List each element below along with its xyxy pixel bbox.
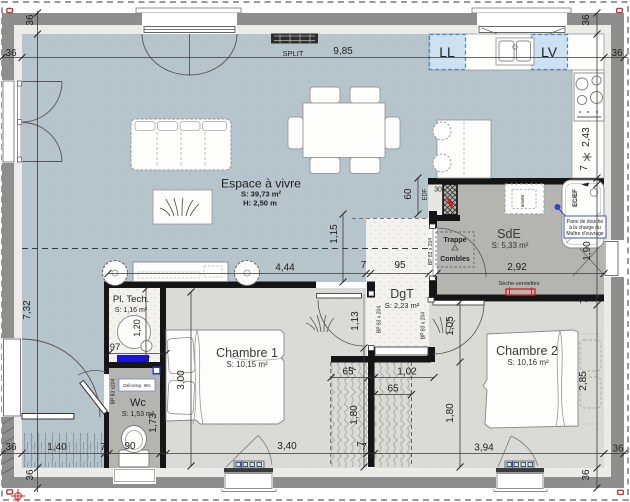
svg-text:DgT: DgT (390, 287, 414, 301)
svg-text:36: 36 (25, 14, 36, 26)
svg-text:9,85: 9,85 (333, 46, 353, 57)
svg-text:36: 36 (5, 48, 17, 59)
svg-text:36: 36 (5, 442, 17, 453)
svg-text:36: 36 (612, 444, 624, 455)
svg-text:2,43: 2,43 (581, 127, 592, 147)
svg-text:1,40: 1,40 (47, 442, 67, 453)
svg-text:S: 5,33 m²: S: 5,33 m² (492, 241, 529, 250)
svg-text:60: 60 (403, 188, 414, 200)
svg-text:SdE: SdE (497, 227, 521, 241)
svg-text:36: 36 (581, 469, 592, 481)
svg-text:65: 65 (342, 367, 354, 378)
svg-text:36: 36 (581, 14, 592, 26)
svg-text:Wc: Wc (130, 397, 146, 409)
svg-text:4,44: 4,44 (275, 263, 295, 274)
svg-text:1,13: 1,13 (350, 311, 361, 331)
svg-text:1,15: 1,15 (329, 224, 340, 244)
svg-text:7: 7 (356, 441, 367, 447)
svg-text:36: 36 (611, 48, 623, 59)
svg-text:1,80: 1,80 (349, 405, 360, 425)
svg-text:95: 95 (394, 260, 406, 271)
svg-text:1,05: 1,05 (445, 316, 456, 336)
svg-text:S: 1,53 m²: S: 1,53 m² (122, 411, 155, 418)
svg-text:1,80: 1,80 (445, 403, 456, 423)
svg-text:Combles: Combles (440, 256, 470, 263)
svg-text:2,85: 2,85 (578, 371, 589, 391)
svg-text:H: 2,50 m: H: 2,50 m (243, 199, 277, 208)
svg-text:BP 83 x 204: BP 83 x 204 (428, 238, 434, 265)
svg-text:BP 83 x204: BP 83 x204 (111, 378, 117, 404)
svg-text:S: 1,16 m²: S: 1,16 m² (115, 307, 148, 314)
svg-text:2,92: 2,92 (507, 262, 527, 273)
svg-text:EDF: EDF (423, 188, 429, 200)
svg-text:3,40: 3,40 (277, 441, 297, 452)
svg-text:36: 36 (25, 469, 36, 481)
svg-text:1,20: 1,20 (132, 319, 142, 337)
svg-text:S: 2,23 m²: S: 2,23 m² (385, 301, 420, 310)
svg-text:SPLIT: SPLIT (283, 49, 304, 58)
svg-text:7: 7 (579, 298, 590, 304)
svg-text:Sèche-serviettes: Sèche-serviettes (499, 281, 540, 287)
svg-text:7: 7 (579, 165, 590, 171)
svg-text:7: 7 (160, 442, 166, 453)
svg-text:BP 83 x 204: BP 83 x 204 (377, 306, 383, 333)
svg-text:S: 39,73 m²: S: 39,73 m² (241, 190, 282, 199)
svg-text:BP 83 x 204: BP 83 x 204 (421, 312, 427, 339)
svg-text:3,94: 3,94 (474, 443, 494, 454)
svg-text:Chambre 2: Chambre 2 (496, 344, 558, 358)
svg-text:S: 10,16 m²: S: 10,16 m² (507, 358, 549, 367)
svg-text:30: 30 (434, 187, 442, 194)
svg-text:3,00: 3,00 (176, 370, 187, 390)
svg-text:7: 7 (361, 260, 367, 271)
svg-text:Chambre 1: Chambre 1 (216, 346, 278, 360)
svg-text:Pl. Tech.: Pl. Tech. (113, 294, 149, 305)
svg-text:1,02: 1,02 (397, 367, 417, 378)
svg-text:EC/EF: EC/EF (573, 189, 579, 207)
svg-text:Décomp. Wc: Décomp. Wc (123, 383, 151, 389)
svg-text:90: 90 (124, 441, 136, 452)
svg-text:S: 10,15 m²: S: 10,15 m² (226, 360, 268, 369)
svg-text:97: 97 (110, 342, 121, 353)
svg-text:7,32: 7,32 (22, 300, 33, 320)
svg-text:Maître d'ouvrage: Maître d'ouvrage (566, 231, 604, 237)
svg-text:60x60: 60x60 (520, 194, 525, 207)
svg-text:1,90: 1,90 (582, 241, 593, 261)
svg-text:Trappe: Trappe (444, 237, 467, 244)
svg-text:Espace à vivre: Espace à vivre (221, 177, 301, 191)
svg-text:65: 65 (387, 384, 399, 395)
svg-text:7: 7 (100, 442, 106, 453)
